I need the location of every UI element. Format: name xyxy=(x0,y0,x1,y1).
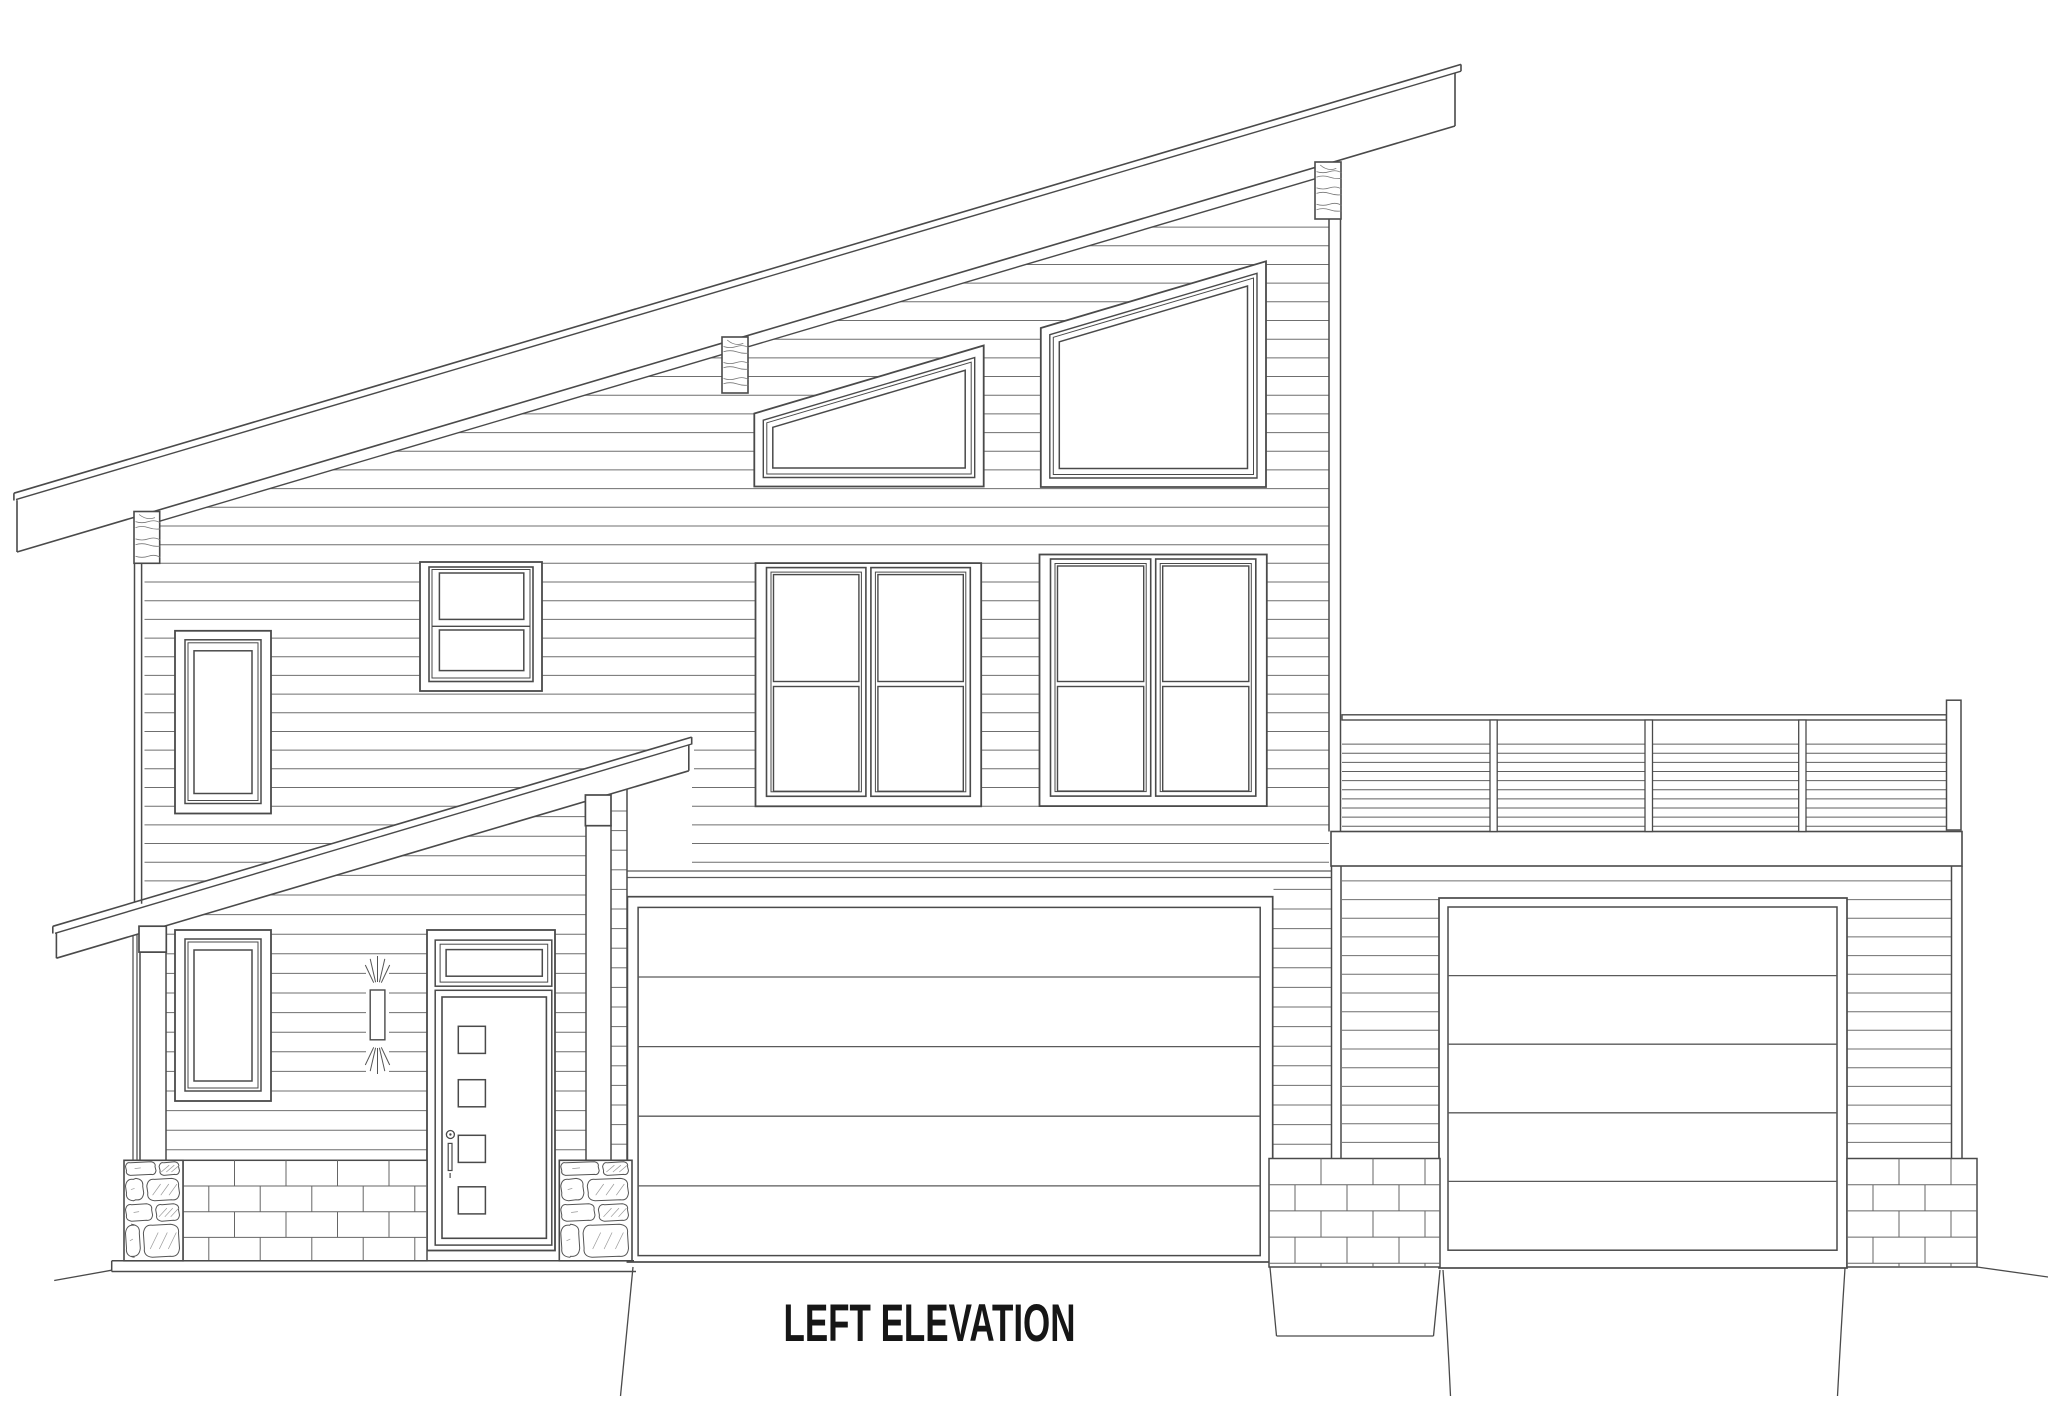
svg-text:LEFT ELEVATION: LEFT ELEVATION xyxy=(784,1294,1076,1353)
